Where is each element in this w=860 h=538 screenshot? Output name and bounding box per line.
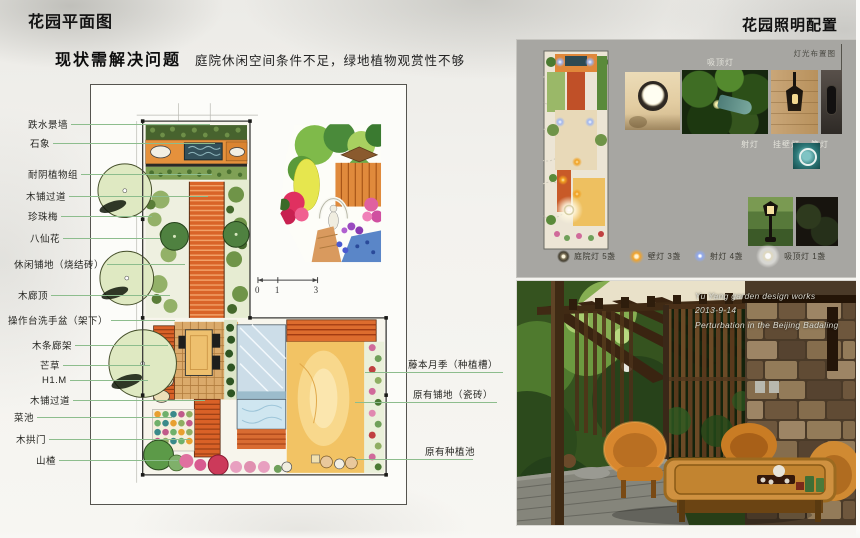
caption-line: Perturbation in the Beijing Badaling xyxy=(695,318,853,332)
legend-item-wall-lamp: 壁灯 3盏 xyxy=(629,249,681,264)
leader-line xyxy=(75,345,168,346)
plan-annotation: 原有铺地（瓷砖） xyxy=(413,387,493,401)
plan-annotation-text: 菜池 xyxy=(14,410,34,424)
leader-line xyxy=(81,174,212,175)
legend-name: 吸顶灯 xyxy=(784,252,810,261)
scale-tick-1: 1 xyxy=(275,285,279,295)
courtyard-lamp-glow xyxy=(767,206,774,214)
lantern-glow xyxy=(792,94,798,104)
page-edge xyxy=(0,530,860,538)
leader-line xyxy=(53,143,215,144)
plan-annotation-text: 木条廊架 xyxy=(32,338,72,352)
courtyard-lamp-dot-icon xyxy=(557,250,570,263)
plan-annotation: 休闲铺地（烧结砖） xyxy=(14,257,185,271)
plan-annotation: 原有种植池 xyxy=(425,444,475,458)
spotlight-label: 射灯 xyxy=(741,139,759,150)
plan-annotation: 山楂 xyxy=(36,453,178,467)
caption-line: Yu Yang garden design works xyxy=(695,289,853,303)
legend-name: 壁灯 xyxy=(648,252,665,261)
lighting-layout-panel: 灯光布置图 吸顶灯 xyxy=(517,40,856,277)
plan-annotation-text: 藤本月季（种植槽） xyxy=(408,360,498,371)
ceiling-lamp-icon xyxy=(638,81,668,111)
leader-line xyxy=(63,365,150,366)
leader-line xyxy=(107,264,185,265)
lighting-plan-thumbnail xyxy=(543,50,609,250)
photo-shade xyxy=(625,114,680,130)
uplight-photo xyxy=(793,143,820,169)
plan-annotation: 木铺过道 xyxy=(26,189,208,203)
legend-item-ceiling-lamp: 吸顶灯 1盏 xyxy=(756,244,826,268)
wall-lantern-photo xyxy=(771,70,818,134)
leader-line xyxy=(355,459,473,460)
legend-name: 庭院灯 xyxy=(574,252,600,261)
plan-annotation-text: 操作台洗手盆（架下） xyxy=(8,313,108,327)
garden-sketch-vignette xyxy=(278,121,389,262)
leader-line xyxy=(51,295,170,296)
section-title-lighting: 花园照明配置 xyxy=(742,14,838,35)
plan-annotation: 木条廊架 xyxy=(32,338,168,352)
leader-line xyxy=(37,417,172,418)
spotlight-photo xyxy=(682,70,768,134)
pergola-photo-panel: Yu Yang garden design works 2013-9-14 Pe… xyxy=(517,281,856,525)
plan-annotation: 木廊顶 xyxy=(18,288,170,302)
plan-annotation-text: 木铺过道 xyxy=(26,189,66,203)
legend-count: 4盏 xyxy=(730,252,743,261)
legend-label: 吸顶灯 1盏 xyxy=(784,251,826,262)
plan-annotation-text: 芒草 xyxy=(40,358,60,372)
ceiling-lamp-label: 吸顶灯 xyxy=(707,57,734,68)
leader-line xyxy=(63,238,160,239)
leader-line xyxy=(365,372,503,373)
leader-line xyxy=(111,320,175,321)
lighting-legend: 庭院灯 5盏 壁灯 3盏 射灯 4盏 吸顶灯 1盏 xyxy=(557,244,826,268)
plan-annotation: H1.M xyxy=(42,375,148,386)
leader-line xyxy=(59,460,178,461)
plan-annotation: 芒草 xyxy=(40,358,150,372)
lantern-arm xyxy=(793,72,796,86)
scale-bar: 0 1 3 xyxy=(255,277,319,295)
lower-wood-path xyxy=(194,399,220,457)
legend-count: 3盏 xyxy=(667,252,680,261)
plan-annotation: 八仙花 xyxy=(30,231,160,245)
plan-annotation-text: H1.M xyxy=(42,375,67,386)
glass-roof-and-pond xyxy=(237,325,286,449)
plan-annotation: 石象 xyxy=(30,136,215,150)
page-title: 花园平面图 xyxy=(28,8,113,32)
leader-line xyxy=(61,216,152,217)
problem-heading: 现状需解决问题 xyxy=(55,46,181,70)
legend-count: 1盏 xyxy=(812,252,825,261)
plan-annotation-text: 珍珠梅 xyxy=(28,209,58,223)
leader-line xyxy=(73,400,205,401)
existing-tile-paving xyxy=(287,342,365,473)
plan-annotation: 操作台洗手盆（架下） xyxy=(8,313,175,327)
page-edge xyxy=(856,0,860,538)
courtyard-lamp-stem xyxy=(769,216,772,238)
scale-tick-0: 0 xyxy=(255,285,260,295)
leader-line xyxy=(355,402,497,403)
spotlight-fixture-icon xyxy=(717,94,753,116)
presentation-slide: { "page": { "title_left": "花园平面图", "titl… xyxy=(0,0,860,538)
leader-line xyxy=(69,196,208,197)
plan-annotation-text: 木廊顶 xyxy=(18,288,48,302)
lighting-corner-label: 灯光布置图 xyxy=(794,48,837,59)
ceiling-lamp-photo xyxy=(625,72,680,130)
problem-text: 庭院休闲空间条件不足，绿地植物观赏性不够 xyxy=(195,50,465,69)
courtyard-lamp-base xyxy=(765,237,776,242)
plan-annotation: 跌水景墙 xyxy=(28,117,210,131)
plan-annotation: 藤本月季（种植槽） xyxy=(408,357,498,371)
courtyard-lamp-photo xyxy=(748,197,793,246)
plan-annotation-text: 耐阴植物组 xyxy=(28,167,78,181)
deck-band xyxy=(287,320,376,342)
dark-garden-photo xyxy=(796,197,838,246)
downlight-photo xyxy=(821,70,842,134)
legend-count: 5盏 xyxy=(602,252,615,261)
caption-line: 2013-9-14 xyxy=(695,303,853,317)
plan-annotation-text: 木铺过道 xyxy=(30,393,70,407)
legend-label: 射灯 4盏 xyxy=(710,251,743,262)
plan-annotation: 耐阴植物组 xyxy=(28,167,212,181)
plan-annotation-text: 山楂 xyxy=(36,453,56,467)
photo-caption: Yu Yang garden design works 2013-9-14 Pe… xyxy=(695,289,853,332)
leader-line xyxy=(70,380,148,381)
legend-label: 壁灯 3盏 xyxy=(648,251,681,262)
legend-name: 射灯 xyxy=(710,252,727,261)
plan-annotation: 木铺过道 xyxy=(30,393,205,407)
legend-label: 庭院灯 5盏 xyxy=(574,251,616,262)
plan-annotation-text: 八仙花 xyxy=(30,231,60,245)
plan-annotation: 菜池 xyxy=(14,410,172,424)
plan-annotation-text: 原有铺地（瓷砖） xyxy=(413,390,493,401)
wall-lamp-dot-icon xyxy=(629,249,644,264)
plan-annotation-text: 石象 xyxy=(30,136,50,150)
leader-line xyxy=(71,124,210,125)
plan-annotation: 珍珠梅 xyxy=(28,209,152,223)
leader-line xyxy=(49,439,190,440)
plan-annotation: 木拱门 xyxy=(16,432,190,446)
scale-tick-3: 3 xyxy=(314,285,319,295)
spotlight-dot-icon xyxy=(694,250,706,262)
plan-annotation-text: 木拱门 xyxy=(16,432,46,446)
downlight-fixture-icon xyxy=(827,86,836,114)
plan-annotation-text: 原有种植池 xyxy=(425,447,475,458)
plan-annotation-text: 休闲铺地（烧结砖） xyxy=(14,257,104,271)
legend-item-courtyard-lamp: 庭院灯 5盏 xyxy=(557,250,616,263)
plan-annotation-text: 跌水景墙 xyxy=(28,117,68,131)
problem-statement: 现状需解决问题 庭院休闲空间条件不足，绿地植物观赏性不够 xyxy=(55,46,465,70)
legend-item-spotlight: 射灯 4盏 xyxy=(694,250,743,262)
ceiling-lamp-dot-icon xyxy=(756,244,780,268)
uplight-ring xyxy=(799,148,817,166)
